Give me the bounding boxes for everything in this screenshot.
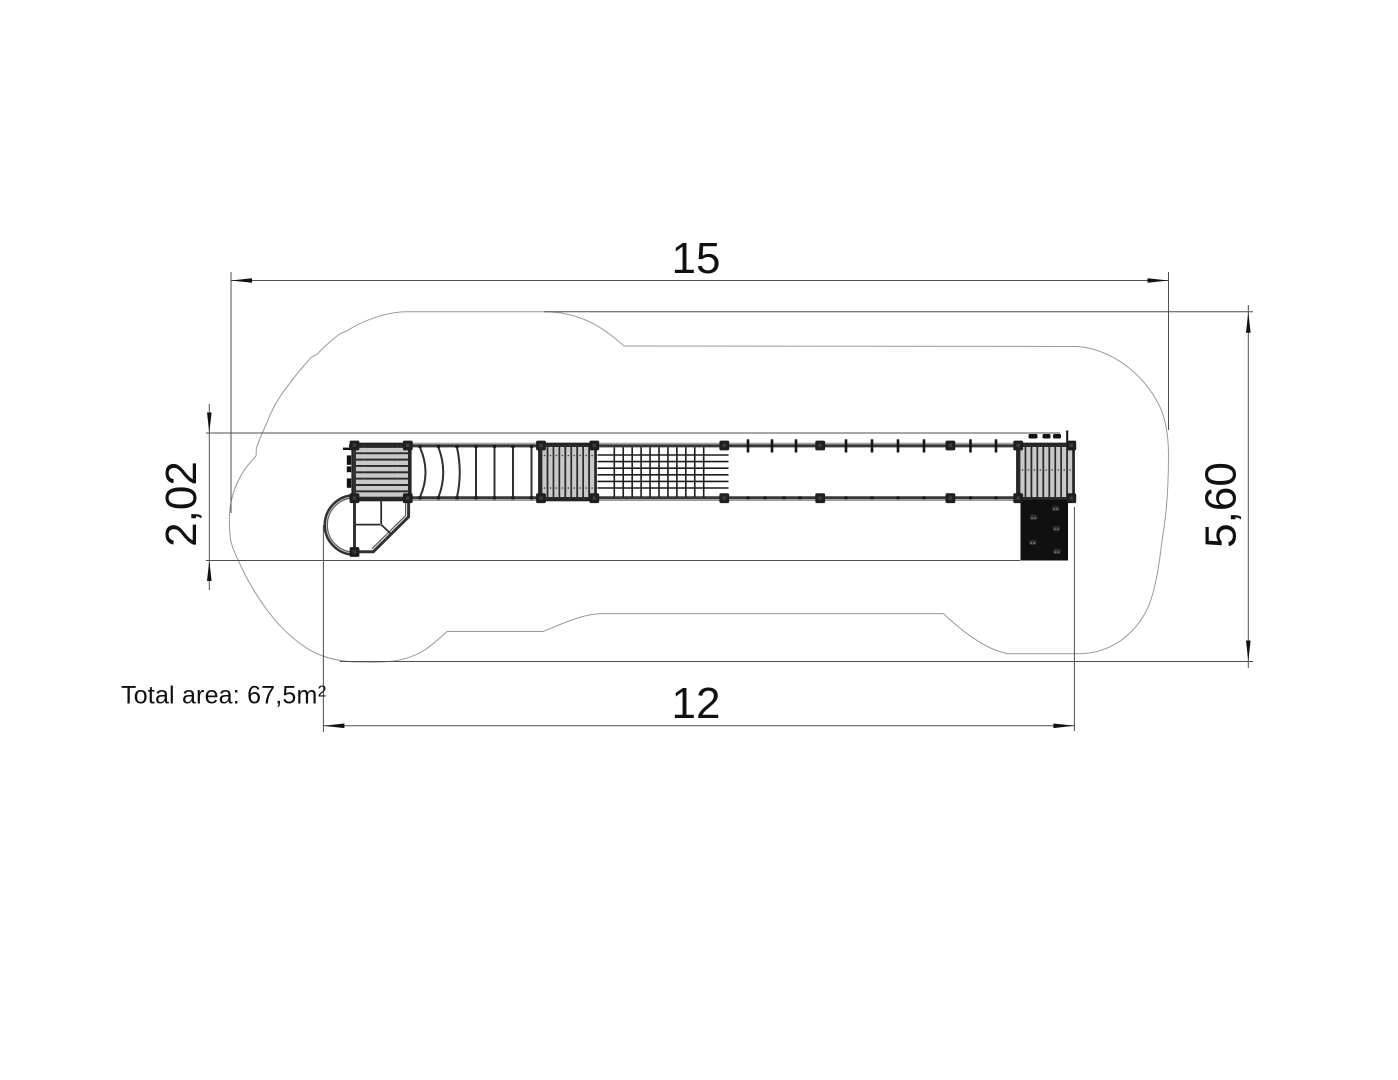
svg-text:2,02: 2,02 [157, 461, 206, 547]
svg-text:Total area: 67,5m2: Total area: 67,5m2 [121, 682, 327, 710]
svg-text:12: 12 [672, 679, 721, 728]
svg-text:5,60: 5,60 [1197, 462, 1246, 548]
svg-text:15: 15 [672, 234, 721, 283]
